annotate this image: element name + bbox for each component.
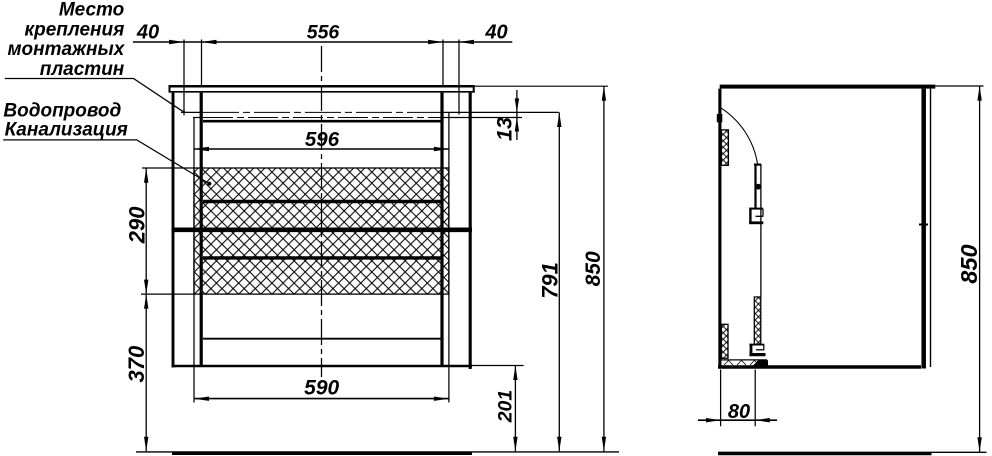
svg-text:40: 40 [136, 22, 159, 44]
svg-text:Канализация: Канализация [5, 120, 128, 141]
svg-text:40: 40 [484, 21, 507, 43]
svg-text:370: 370 [124, 345, 149, 382]
svg-text:556: 556 [307, 22, 340, 44]
svg-text:850: 850 [956, 244, 982, 283]
svg-text:201: 201 [495, 390, 517, 424]
svg-text:Место: Место [59, 0, 124, 21]
svg-text:590: 590 [304, 377, 339, 400]
svg-text:13: 13 [493, 117, 517, 141]
svg-text:850: 850 [582, 251, 605, 286]
svg-text:80: 80 [728, 401, 750, 423]
svg-text:монтажных: монтажных [7, 39, 125, 60]
svg-text:пластин: пластин [40, 59, 125, 80]
svg-text:крепления: крепления [24, 19, 124, 40]
svg-text:596: 596 [305, 128, 340, 151]
svg-text:Водопровод: Водопровод [3, 101, 121, 122]
svg-text:791: 791 [537, 262, 562, 299]
svg-text:290: 290 [125, 206, 150, 244]
